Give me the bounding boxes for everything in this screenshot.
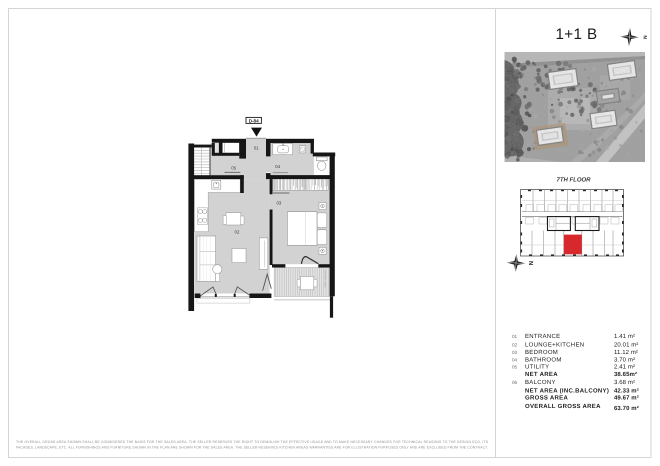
svg-text:49.67 m²: 49.67 m²: [614, 395, 639, 402]
svg-text:06: 06: [512, 380, 518, 385]
svg-text:20.01 m²: 20.01 m²: [614, 341, 638, 348]
svg-text:D-84: D-84: [249, 118, 259, 123]
svg-text:03: 03: [276, 200, 281, 205]
svg-text:01: 01: [254, 145, 259, 150]
svg-text:OVERALL GROSS AREA: OVERALL GROSS AREA: [525, 403, 601, 410]
svg-text:04: 04: [512, 358, 518, 363]
svg-text:2.41 m²: 2.41 m²: [614, 364, 635, 371]
svg-text:42.33 m²: 42.33 m²: [614, 388, 639, 395]
svg-text:N: N: [527, 261, 534, 265]
svg-text:1.41 m²: 1.41 m²: [614, 333, 635, 340]
svg-text:7TH FLOOR: 7TH FLOOR: [557, 177, 592, 184]
svg-text:BATHROOM: BATHROOM: [525, 357, 562, 364]
svg-text:BALCONY: BALCONY: [525, 379, 556, 386]
svg-text:11.12 m²: 11.12 m²: [614, 349, 638, 356]
svg-text:02: 02: [512, 342, 518, 347]
svg-text:GROSS AREA: GROSS AREA: [525, 395, 568, 402]
svg-text:N: N: [641, 35, 647, 39]
svg-text:BEDROOM: BEDROOM: [525, 349, 558, 356]
svg-text:NET AREA: NET AREA: [525, 371, 558, 378]
svg-text:LOUNGE+KITCHEN: LOUNGE+KITCHEN: [525, 341, 584, 348]
svg-text:01: 01: [512, 334, 518, 339]
svg-text:04: 04: [275, 164, 280, 169]
svg-text:THE OVERALL GROSS AREA SHOWN S: THE OVERALL GROSS AREA SHOWN SHALL BE CO…: [16, 440, 489, 444]
svg-text:1+1 B: 1+1 B: [555, 26, 597, 43]
svg-text:38.65m²: 38.65m²: [614, 371, 637, 378]
svg-text:3.68 m²: 3.68 m²: [614, 379, 635, 386]
svg-text:UTILITY: UTILITY: [525, 364, 549, 371]
svg-text:BALCONY 3.68m: BALCONY 3.68m: [324, 270, 327, 287]
svg-text:63.70 m²: 63.70 m²: [614, 405, 639, 412]
svg-text:ENTRANCE: ENTRANCE: [525, 333, 560, 340]
svg-text:05: 05: [231, 166, 236, 171]
svg-text:FACADES, LANDSCAPE, ETC. ALL F: FACADES, LANDSCAPE, ETC. ALL FURNISHINGS…: [16, 445, 488, 449]
svg-text:3.70 m²: 3.70 m²: [614, 357, 635, 364]
svg-text:05: 05: [512, 365, 518, 370]
svg-text:NET AREA (INC.BALCONY): NET AREA (INC.BALCONY): [525, 388, 609, 395]
svg-text:02: 02: [235, 230, 240, 235]
svg-text:03: 03: [512, 350, 518, 355]
